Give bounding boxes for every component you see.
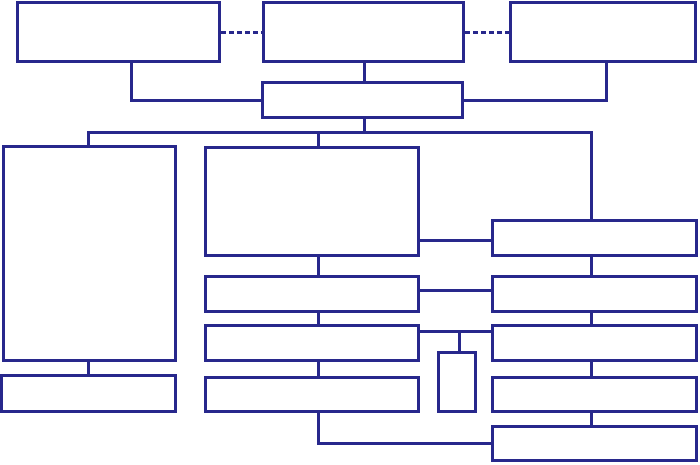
right-bar-2 (491, 275, 698, 313)
top-center-drop (363, 62, 366, 83)
left-tall-box (2, 145, 177, 362)
center-bottom-drop (317, 411, 320, 445)
right-bar-1 (491, 219, 698, 257)
distribution-line (87, 131, 593, 134)
center-to-right-link-1 (418, 239, 493, 242)
top-right-box (509, 1, 697, 63)
center-to-right-link-3 (418, 330, 493, 333)
dashed-link-left (221, 31, 262, 34)
top-left-drop (130, 62, 133, 102)
top-center-box (262, 1, 465, 63)
center-to-right-link-2 (418, 289, 493, 292)
center-stub-1 (317, 255, 320, 277)
right-stub-4 (590, 411, 593, 427)
center-bar-2 (204, 324, 420, 362)
right-stub-1 (590, 255, 593, 277)
center-stub-3 (317, 360, 320, 378)
small-vertical-box (437, 351, 477, 413)
right-stub-2 (590, 311, 593, 326)
left-bottom-stub (87, 360, 90, 376)
bottom-link (317, 442, 493, 445)
center-bar-1 (204, 275, 420, 313)
top-left-box (16, 1, 221, 63)
top-right-elbow (462, 99, 608, 102)
left-branch-drop (87, 131, 90, 147)
center-branch-drop (317, 131, 320, 148)
right-bar-4 (491, 376, 698, 413)
center-stub-2 (317, 311, 320, 326)
top-right-drop (605, 62, 608, 102)
dashed-link-right (465, 31, 509, 34)
right-bar-5 (491, 425, 698, 462)
small-box-drop (458, 330, 461, 353)
top-left-elbow (130, 99, 263, 102)
center-bar-3 (204, 376, 420, 413)
org-chart-diagram (0, 0, 700, 465)
left-bottom-bar (0, 374, 177, 413)
right-bar-3 (491, 324, 698, 362)
secondary-center-box (261, 81, 464, 119)
right-stub-3 (590, 360, 593, 378)
right-branch-drop (590, 131, 593, 221)
center-large-box (204, 146, 420, 257)
